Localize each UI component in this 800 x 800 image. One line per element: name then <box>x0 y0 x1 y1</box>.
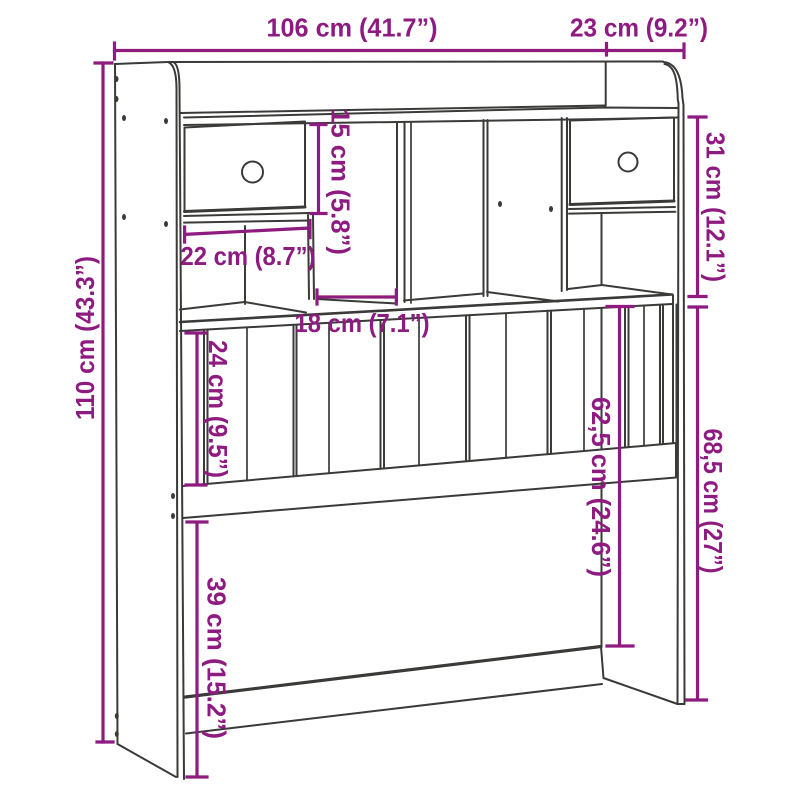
svg-text:22 cm (8.7”): 22 cm (8.7”) <box>181 241 316 271</box>
svg-text:18 cm (7.1”): 18 cm (7.1”) <box>295 308 430 338</box>
svg-text:39 cm (15.2”): 39 cm (15.2”) <box>202 577 232 739</box>
svg-text:15 cm (5.8”): 15 cm (5.8”) <box>326 109 356 255</box>
svg-text:31 cm (12.1”): 31 cm (12.1”) <box>701 132 731 282</box>
svg-text:110 cm (43.3”): 110 cm (43.3”) <box>70 256 100 420</box>
svg-text:68,5 cm (27”): 68,5 cm (27”) <box>698 429 728 574</box>
svg-text:24 cm (9.5”): 24 cm (9.5”) <box>203 340 233 478</box>
svg-text:106 cm (41.7”): 106 cm (41.7”) <box>267 13 438 43</box>
svg-text:23 cm (9.2”): 23 cm (9.2”) <box>570 13 708 43</box>
svg-text:62,5 cm (24.6”): 62,5 cm (24.6”) <box>586 397 616 577</box>
